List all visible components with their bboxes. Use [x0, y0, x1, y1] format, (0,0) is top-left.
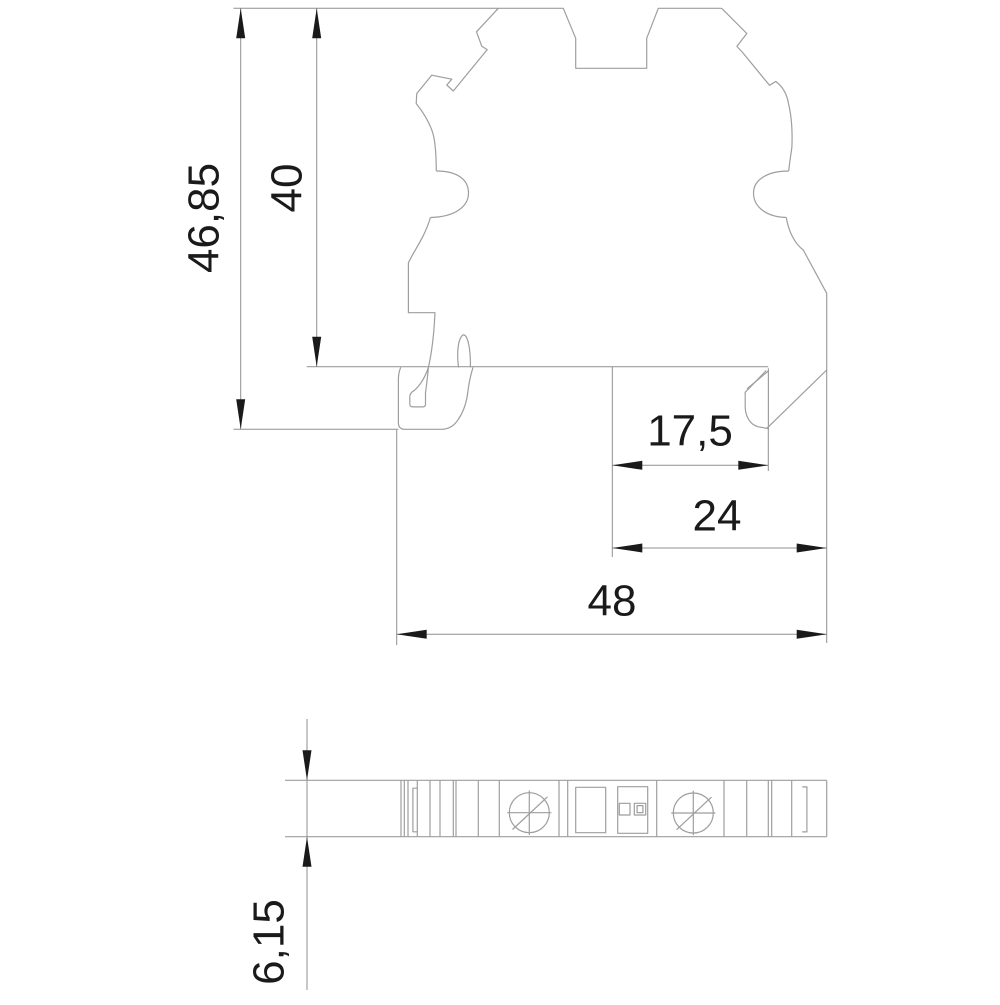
front-outline-right-lower [767, 218, 827, 429]
right-foot [745, 368, 768, 428]
arrowhead-left [612, 544, 642, 553]
arrowhead-down [312, 337, 321, 367]
arrowhead-up [312, 8, 321, 38]
rail-jaw-tooth [410, 368, 429, 407]
contact-square-1 [619, 803, 630, 815]
front-outline-right-upper [722, 8, 792, 171]
arrowhead-right [738, 461, 768, 470]
dimension-thickness: 6,15 [245, 719, 312, 990]
contact-square-2-inner [637, 806, 643, 813]
marker-bracket-right [802, 787, 807, 832]
front-view [307, 8, 827, 429]
arrowhead-down [236, 399, 245, 429]
arrowhead-up [303, 837, 312, 867]
left-rib-bump [430, 171, 468, 218]
screw-head-left [507, 790, 551, 835]
dimension-body-height: 40 [263, 8, 322, 366]
front-outline-top [498, 8, 721, 68]
dimension-label-rail-offset: 17,5 [647, 407, 733, 456]
front-outline-left-lower [408, 218, 435, 368]
arrowhead-right [797, 630, 827, 639]
right-rib-bump [754, 171, 789, 218]
arrowhead-left [397, 630, 427, 639]
arrowhead-right [797, 544, 827, 553]
clamp-tongue [458, 335, 471, 368]
dimension-label-lower-width: 24 [693, 492, 742, 541]
dimension-label-overall-height: 46,85 [180, 163, 229, 273]
screw-head-right [671, 791, 715, 836]
technical-drawing-canvas: 46,85 40 17,5 24 48 6,15 [0, 0, 1000, 1000]
arrowhead-left [612, 461, 642, 470]
arrowhead-up [236, 8, 245, 38]
dimension-label-thickness: 6,15 [245, 899, 294, 985]
side-partitions [401, 780, 792, 836]
front-outline-left-upper [416, 8, 498, 171]
dimension-overall-width: 48 [397, 430, 827, 645]
drawing-page: 46,85 40 17,5 24 48 6,15 [0, 0, 1000, 1000]
jumper-box [576, 787, 606, 832]
arrowhead-down [303, 750, 312, 780]
dimension-label-overall-width: 48 [588, 577, 637, 626]
side-view [285, 780, 827, 836]
right-foot-slot-line [747, 371, 768, 389]
dimension-label-body-height: 40 [263, 164, 312, 213]
